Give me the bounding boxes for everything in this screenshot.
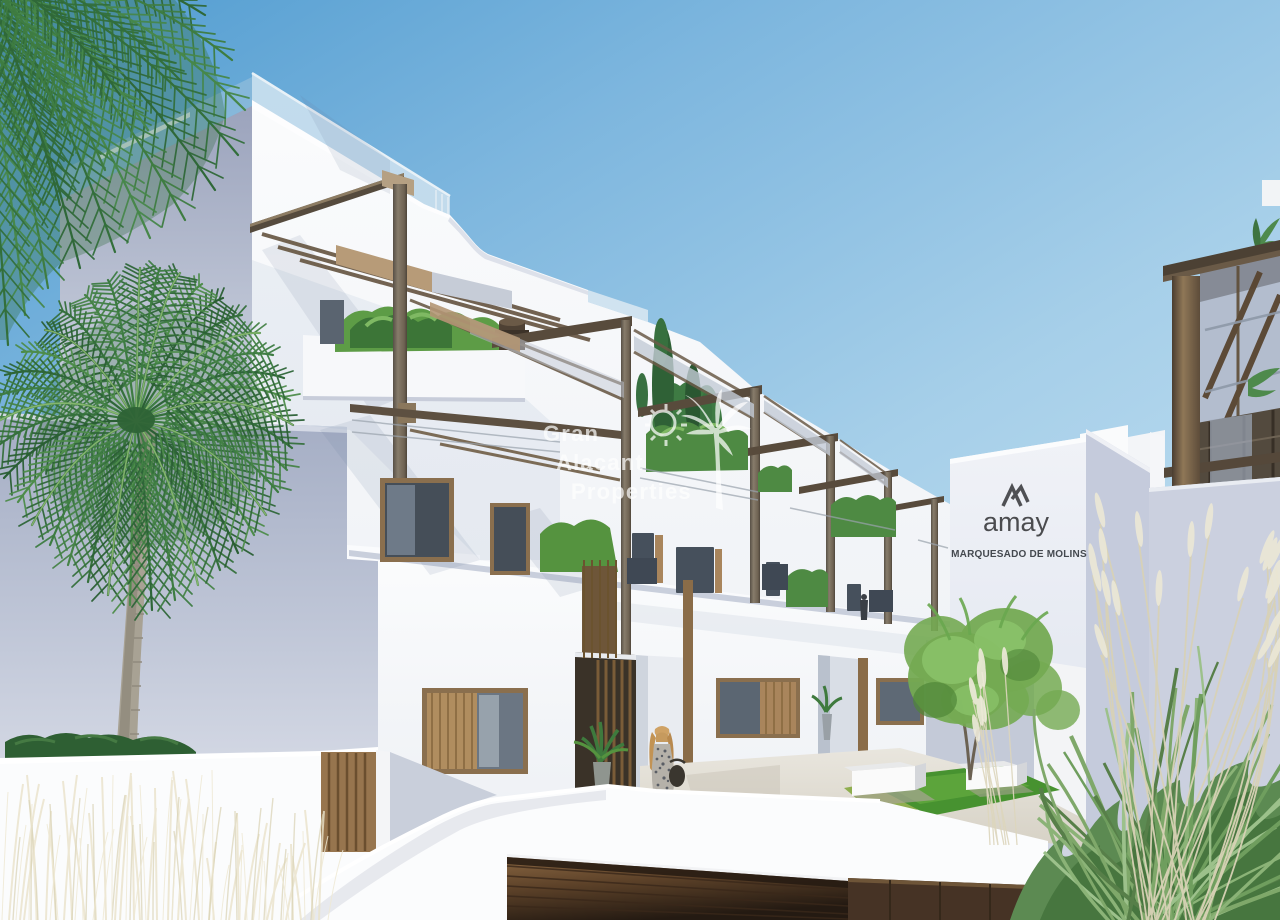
svg-text:Properties: Properties <box>571 479 692 504</box>
svg-text:MARQUESADO DE MOLINS: MARQUESADO DE MOLINS <box>951 549 1087 560</box>
svg-text:Alacant: Alacant <box>556 450 644 475</box>
svg-text:Gran: Gran <box>543 421 599 446</box>
svg-text:amay: amay <box>983 507 1050 537</box>
